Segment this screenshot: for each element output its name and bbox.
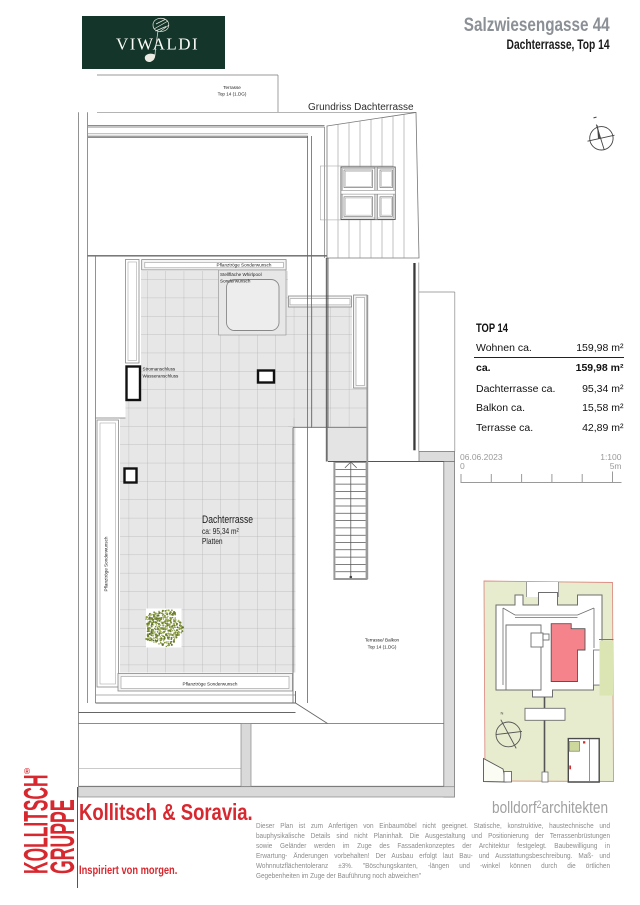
- svg-text:®: ®: [24, 767, 30, 776]
- svg-text:GRUPPE: GRUPPE: [42, 799, 81, 874]
